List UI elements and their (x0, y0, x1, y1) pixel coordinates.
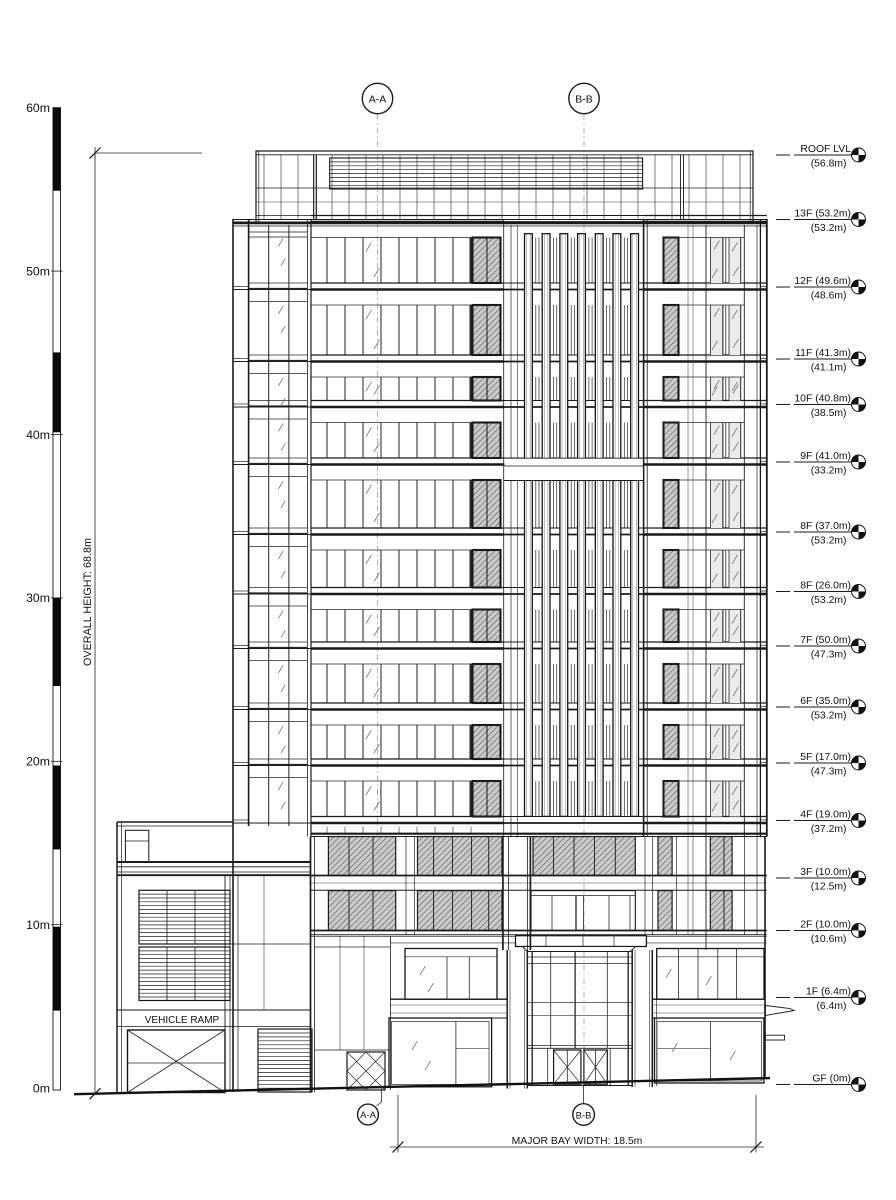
svg-text:(53.2m): (53.2m) (811, 223, 847, 234)
svg-text:10F (40.8m): 10F (40.8m) (794, 394, 851, 405)
svg-text:6F (35.0m): 6F (35.0m) (800, 696, 851, 707)
svg-text:20m: 20m (26, 755, 50, 769)
svg-text:A-A: A-A (360, 1110, 377, 1121)
svg-text:(47.3m): (47.3m) (811, 650, 847, 661)
svg-text:12F (49.6m): 12F (49.6m) (794, 276, 851, 287)
svg-text:40m: 40m (26, 428, 50, 442)
svg-text:OVERALL HEIGHT: 68.8m: OVERALL HEIGHT: 68.8m (82, 538, 94, 666)
svg-text:50m: 50m (26, 264, 50, 278)
svg-text:5F (17.0m): 5F (17.0m) (800, 752, 851, 763)
svg-text:(10.6m): (10.6m) (811, 934, 847, 945)
svg-text:GF (0m): GF (0m) (812, 1074, 851, 1085)
svg-text:B-B: B-B (576, 1110, 592, 1121)
svg-text:(38.5m): (38.5m) (811, 408, 847, 419)
svg-text:1F (6.4m): 1F (6.4m) (806, 987, 851, 998)
svg-text:(41.1m): (41.1m) (811, 363, 847, 374)
svg-text:30m: 30m (26, 591, 50, 605)
svg-text:(53.2m): (53.2m) (811, 595, 847, 606)
svg-text:MAJOR BAY WIDTH: 18.5m: MAJOR BAY WIDTH: 18.5m (512, 1136, 643, 1147)
svg-text:2F (10.0m): 2F (10.0m) (800, 920, 851, 931)
svg-text:VEHICLE RAMP: VEHICLE RAMP (145, 1015, 220, 1026)
svg-text:(47.3m): (47.3m) (811, 767, 847, 778)
svg-text:(48.6m): (48.6m) (811, 291, 847, 302)
svg-text:0m: 0m (33, 1081, 50, 1095)
svg-text:(6.4m): (6.4m) (816, 1001, 846, 1012)
svg-text:10m: 10m (26, 918, 50, 932)
svg-text:(33.2m): (33.2m) (811, 466, 847, 477)
svg-text:(12.5m): (12.5m) (811, 882, 847, 893)
svg-text:B-B: B-B (575, 94, 593, 106)
svg-text:8F (37.0m): 8F (37.0m) (800, 521, 851, 532)
svg-text:3F (10.0m): 3F (10.0m) (800, 867, 851, 878)
svg-text:(56.8m): (56.8m) (811, 159, 847, 170)
svg-text:ROOF LVL: ROOF LVL (800, 144, 851, 155)
svg-text:(53.2m): (53.2m) (811, 711, 847, 722)
svg-text:8F (26.0m): 8F (26.0m) (800, 581, 851, 592)
svg-text:13F (53.2m): 13F (53.2m) (794, 209, 851, 220)
svg-text:60m: 60m (26, 101, 50, 115)
svg-text:(53.2m): (53.2m) (811, 536, 847, 547)
svg-text:(37.2m): (37.2m) (811, 824, 847, 835)
svg-text:9F (41.0m): 9F (41.0m) (800, 451, 851, 462)
svg-text:A-A: A-A (369, 94, 387, 106)
svg-text:11F (41.3m): 11F (41.3m) (795, 348, 851, 359)
svg-text:4F (19.0m): 4F (19.0m) (800, 810, 851, 821)
svg-text:7F (50.0m): 7F (50.0m) (800, 635, 851, 646)
